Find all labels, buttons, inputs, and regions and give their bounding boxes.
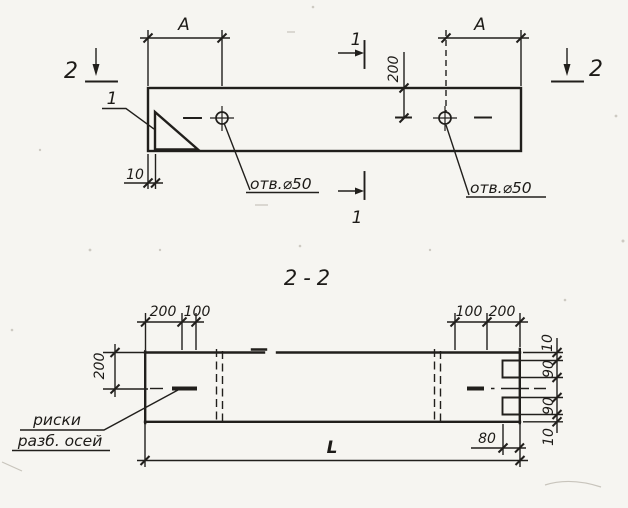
dim-right-90-bottom-label: 90 xyxy=(541,397,557,415)
dim-top-left-1-label: 200 xyxy=(150,304,177,320)
dim-a-left: A xyxy=(140,15,230,86)
axis-label-line2: разб. осей xyxy=(17,432,103,450)
hole-right-label: отв.⌀50 xyxy=(470,179,532,197)
section-mark-2-left: 2 xyxy=(64,48,117,84)
technical-drawing: 1 10 A A 200 xyxy=(0,0,628,508)
dim-200-elevation-label: 200 xyxy=(386,56,402,83)
dim-right-10-bottom-label: 10 xyxy=(541,428,557,446)
beam-outline xyxy=(148,88,521,151)
elevation-view: 1 10 A A 200 xyxy=(64,15,603,228)
section-beam-outline xyxy=(145,349,520,423)
dim-top-left: 200 100 xyxy=(137,304,210,350)
dim-right-chain: 10 90 90 10 xyxy=(521,334,563,446)
dim-right-10-top-label: 10 xyxy=(540,334,556,352)
hole-left xyxy=(184,106,234,131)
hole-left-label: отв.⌀50 xyxy=(250,175,312,193)
dim-200-section-left: 200 xyxy=(92,344,148,397)
dim-length-l: L xyxy=(137,424,528,467)
axis-dashed-lines xyxy=(217,349,441,423)
hole-right xyxy=(396,106,491,131)
hole-callout-right: отв.⌀50 xyxy=(446,125,546,197)
dim-10-left: 10 xyxy=(124,154,163,189)
detail-callout-1: 1 xyxy=(102,89,154,129)
section2-right-label: 2 xyxy=(589,57,603,82)
dim-right-90-top-label: 90 xyxy=(541,360,557,378)
axis-label-line1: риски xyxy=(32,411,81,429)
dim-a-left-label: A xyxy=(177,15,190,35)
dim-80-label: 80 xyxy=(478,431,496,447)
dim-a-right: A xyxy=(438,15,529,113)
drawing-sheet: 1 10 A A 200 xyxy=(0,0,628,508)
section-mark-1-top: 1 xyxy=(338,30,365,68)
section-mark-2-right: 2 xyxy=(552,48,603,82)
dim-length-label: L xyxy=(327,438,338,458)
section1-bottom-label: 1 xyxy=(352,208,363,228)
dim-top-right-2-label: 200 xyxy=(489,304,516,320)
hole-callout-left: отв.⌀50 xyxy=(224,123,319,193)
section-2-2-view: 2-2 рис xyxy=(12,266,563,467)
dim-200-section-left-label: 200 xyxy=(92,353,108,380)
dim-top-right: 100 200 xyxy=(447,304,528,350)
section-title: 2-2 xyxy=(284,266,336,290)
dim-80: 80 xyxy=(471,424,526,455)
dim-top-left-2-label: 100 xyxy=(184,304,211,320)
dim-a-right-label: A xyxy=(473,15,486,35)
end-notches xyxy=(503,361,520,415)
section1-top-label: 1 xyxy=(351,30,362,50)
section-mark-1-bottom: 1 xyxy=(338,172,365,228)
section2-left-label: 2 xyxy=(64,59,78,84)
detail-mark-label: 1 xyxy=(107,89,118,109)
axis-marks-callout: риски разб. осей xyxy=(12,390,178,451)
dim-10-label: 10 xyxy=(126,167,144,183)
dim-top-right-1-label: 100 xyxy=(456,304,483,320)
